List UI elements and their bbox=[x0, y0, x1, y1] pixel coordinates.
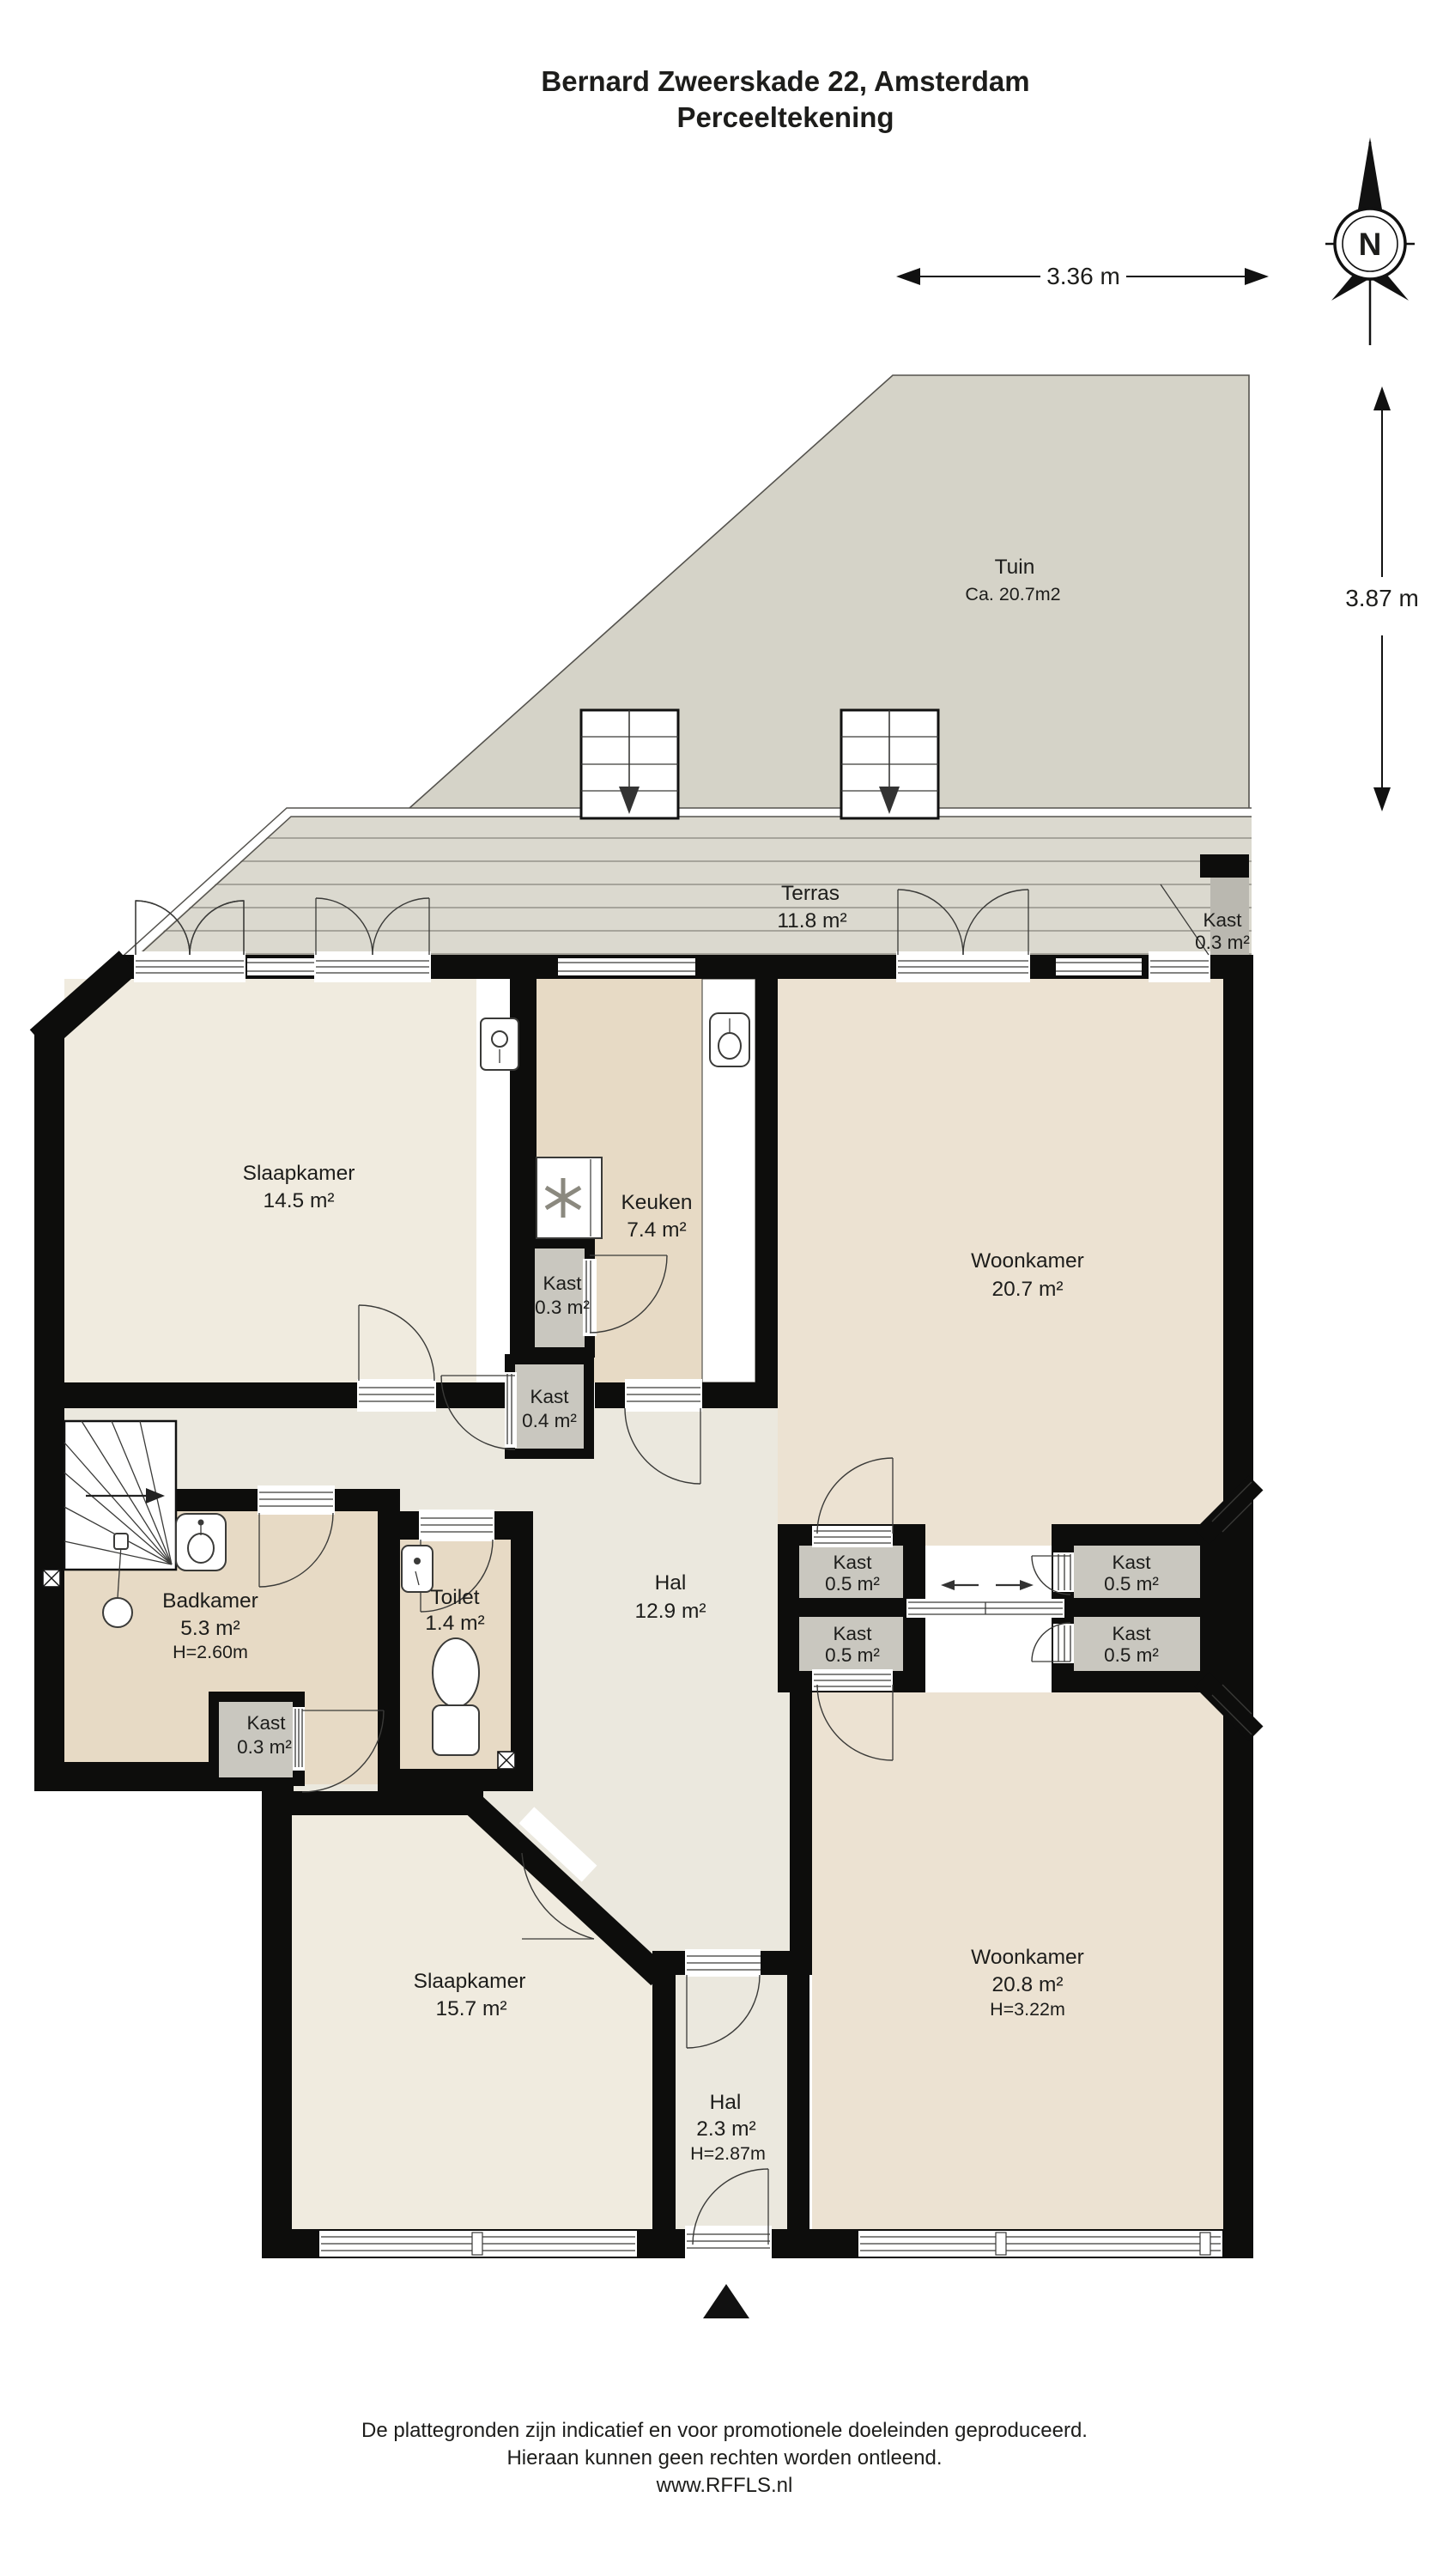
badkamer-height: H=2.60m bbox=[173, 1642, 248, 1662]
hal1-area: 12.9 m² bbox=[634, 1600, 706, 1623]
kast-rt-area: 0.5 m² bbox=[1104, 1573, 1159, 1595]
kast-rt-label: Kast bbox=[1112, 1552, 1151, 1573]
dimension-horizontal: 3.36 m bbox=[896, 263, 1269, 289]
window bbox=[247, 958, 314, 975]
floorplan-page: Bernard Zweerskade 22, Amsterdam Perceel… bbox=[0, 0, 1449, 2576]
boiler-icon bbox=[481, 1018, 518, 1070]
north-label: N bbox=[1359, 227, 1382, 262]
garden-steps-icon bbox=[841, 710, 938, 818]
badkamer-label: Badkamer bbox=[162, 1589, 258, 1613]
toilet-label: Toilet bbox=[430, 1586, 479, 1609]
sink-icon bbox=[176, 1514, 226, 1571]
kast-rb-label: Kast bbox=[1112, 1623, 1151, 1644]
kast-badkamer-label: Kast bbox=[246, 1712, 286, 1734]
window bbox=[858, 2231, 1222, 2257]
vent-icon bbox=[43, 1570, 60, 1587]
slaapkamer2-area: 15.7 m² bbox=[435, 1997, 506, 2020]
vent-icon bbox=[498, 1752, 515, 1769]
kast-terras-label: Kast bbox=[1203, 909, 1242, 931]
title-line1: Bernard Zweerskade 22, Amsterdam bbox=[541, 65, 1029, 97]
kast-lb-area: 0.5 m² bbox=[825, 1644, 880, 1666]
kast-hal-label: Kast bbox=[530, 1386, 569, 1407]
hal2-area: 2.3 m² bbox=[696, 2117, 755, 2141]
tuin-region: Tuin Ca. 20.7m2 bbox=[401, 375, 1249, 816]
hal2-height: H=2.87m bbox=[690, 2143, 766, 2164]
keuken-area: 7.4 m² bbox=[627, 1218, 686, 1242]
window bbox=[319, 2231, 637, 2257]
footer-line2: Hieraan kunnen geen rechten worden ontle… bbox=[506, 2446, 942, 2470]
woonkamer2-height: H=3.22m bbox=[990, 1999, 1065, 2020]
hal2-label: Hal bbox=[710, 2091, 742, 2114]
footer-line1: De plattegronden zijn indicatief en voor… bbox=[361, 2419, 1088, 2442]
dimension-height-label: 3.87 m bbox=[1345, 585, 1419, 611]
kast-lt-label: Kast bbox=[833, 1552, 872, 1573]
kast-keuken-label: Kast bbox=[543, 1273, 582, 1294]
dimension-vertical: 3.87 m bbox=[1345, 386, 1419, 811]
kast-badkamer-area: 0.3 m² bbox=[237, 1736, 292, 1758]
woonkamer1-area: 20.7 m² bbox=[991, 1278, 1063, 1301]
garden-steps-icon bbox=[581, 710, 678, 818]
kast-keuken-area: 0.3 m² bbox=[535, 1297, 590, 1318]
slaapkamer2-label: Slaapkamer bbox=[414, 1970, 526, 1993]
floorplan-canvas: Bernard Zweerskade 22, Amsterdam Perceel… bbox=[0, 0, 1449, 2576]
terras-area-label: 11.8 m² bbox=[777, 909, 846, 933]
entrance-arrow-icon bbox=[703, 2284, 749, 2318]
keuken-label: Keuken bbox=[621, 1191, 692, 1214]
hal1-label: Hal bbox=[655, 1571, 687, 1595]
kast-hal-area: 0.4 m² bbox=[522, 1410, 577, 1431]
woonkamer2-area: 20.8 m² bbox=[991, 1973, 1063, 1996]
dimension-width-label: 3.36 m bbox=[1046, 263, 1120, 289]
page-title: Bernard Zweerskade 22, Amsterdam Perceel… bbox=[541, 65, 1029, 133]
toilet-area: 1.4 m² bbox=[425, 1612, 484, 1635]
kast-rb-area: 0.5 m² bbox=[1104, 1644, 1159, 1666]
north-compass-icon: N bbox=[1325, 137, 1415, 345]
sliding-door-arrows-icon bbox=[941, 1580, 1034, 1590]
window bbox=[1056, 958, 1142, 975]
stove-icon bbox=[537, 1157, 602, 1238]
title-line2: Perceeltekening bbox=[676, 101, 894, 133]
sliding-doors bbox=[906, 1599, 1064, 1618]
woonkamer2-label: Woonkamer bbox=[971, 1946, 1084, 1969]
slaapkamer1-label: Slaapkamer bbox=[243, 1162, 355, 1185]
footer: De plattegronden zijn indicatief en voor… bbox=[361, 2419, 1088, 2497]
tuin-area-label: Ca. 20.7m2 bbox=[965, 584, 1060, 605]
tuin-label: Tuin bbox=[995, 556, 1035, 579]
footer-url: www.RFFLS.nl bbox=[656, 2474, 793, 2497]
badkamer-area: 5.3 m² bbox=[180, 1617, 239, 1640]
kast-terras-area: 0.3 m² bbox=[1195, 932, 1250, 953]
slaapkamer1-area: 14.5 m² bbox=[263, 1189, 334, 1212]
woonkamer1-label: Woonkamer bbox=[971, 1249, 1084, 1273]
window bbox=[558, 958, 695, 975]
kast-lt-area: 0.5 m² bbox=[825, 1573, 880, 1595]
terras-label: Terras bbox=[781, 882, 840, 905]
sink-icon bbox=[710, 1013, 749, 1066]
kast-lb-label: Kast bbox=[833, 1623, 872, 1644]
